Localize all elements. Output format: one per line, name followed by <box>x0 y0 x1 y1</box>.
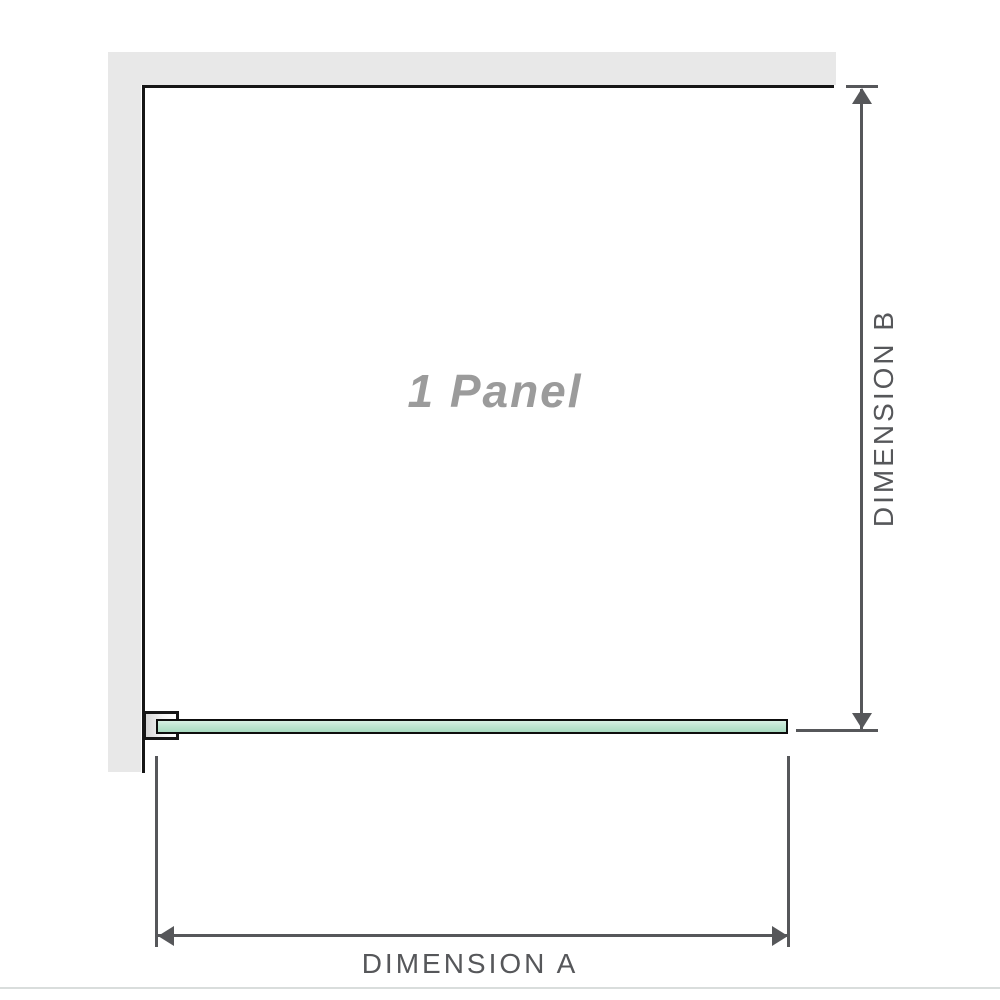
dimension-a-right-extension <box>787 756 790 947</box>
arrow-down-icon <box>852 713 872 729</box>
bottom-divider-line <box>0 987 1000 989</box>
arrow-left-icon <box>158 926 174 946</box>
panel-outline-top <box>142 85 834 88</box>
panel-outline-left <box>142 85 145 773</box>
glass-panel <box>156 719 788 734</box>
arrow-right-icon <box>772 926 788 946</box>
dimension-b-label: DIMENSION B <box>862 268 906 568</box>
dimension-b-bottom-tick <box>796 729 878 732</box>
panel-dimension-diagram: 1 Panel DIMENSION B DIMENSION A <box>0 0 1000 1000</box>
arrow-up-icon <box>852 88 872 104</box>
dimension-a-label: DIMENSION A <box>305 948 635 980</box>
wall-top <box>108 52 836 85</box>
dimension-a-line <box>158 934 788 937</box>
dimension-a-left-extension <box>155 756 158 947</box>
wall-left <box>108 52 141 772</box>
panel-count-label: 1 Panel <box>150 363 840 419</box>
